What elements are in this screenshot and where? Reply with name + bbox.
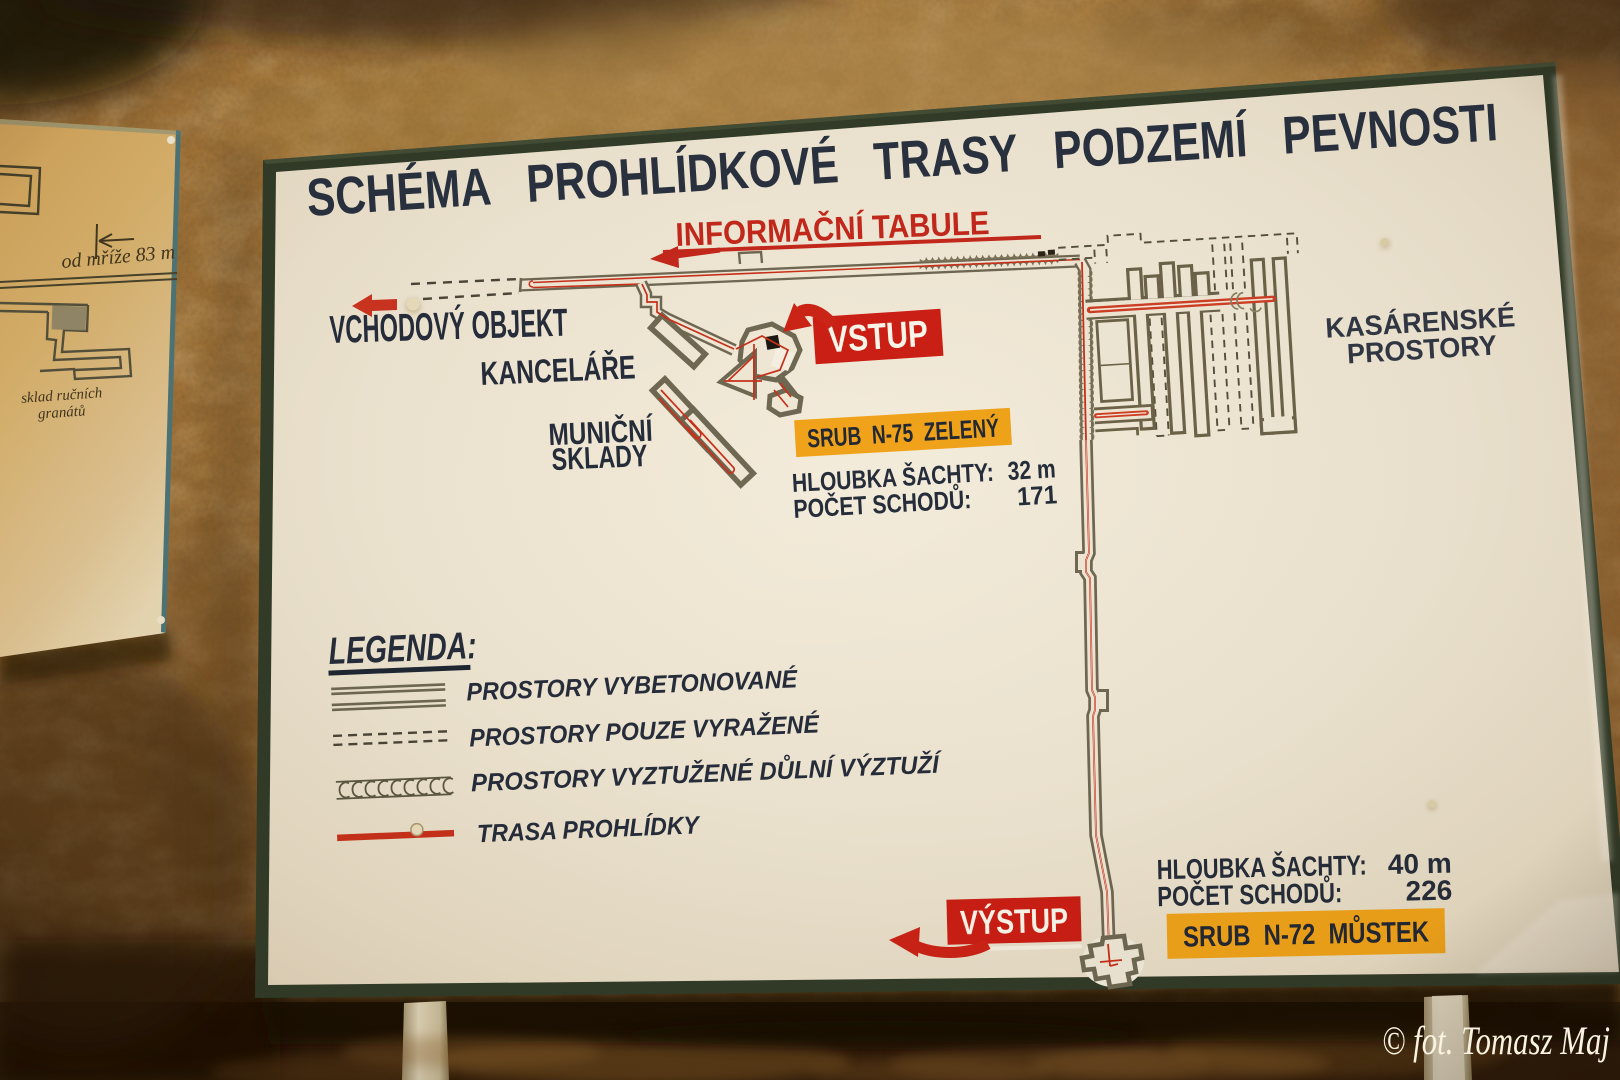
svg-text:© fot. Tomasz Maj: © fot. Tomasz Maj: [1382, 1018, 1610, 1063]
